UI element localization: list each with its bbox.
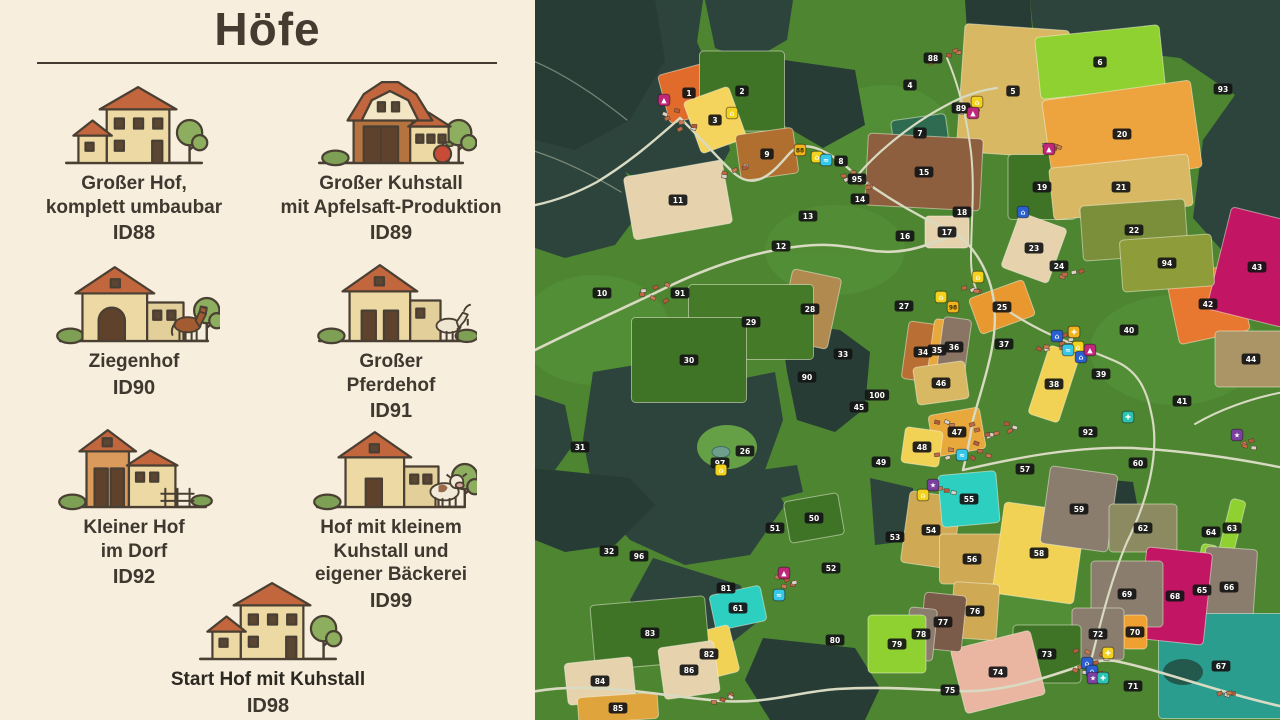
field-label-75: 75	[941, 685, 960, 696]
svg-text:34: 34	[918, 348, 928, 357]
svg-text:41: 41	[1177, 397, 1187, 406]
svg-text:76: 76	[970, 607, 980, 616]
svg-text:55: 55	[964, 495, 974, 504]
farm-poi-icon[interactable]: ⌂	[726, 107, 738, 119]
svg-text:✚: ✚	[1105, 650, 1111, 658]
svg-text:✚: ✚	[1125, 414, 1131, 422]
field-label-94: 94	[1158, 258, 1177, 269]
svg-text:35: 35	[932, 346, 942, 355]
svg-text:20: 20	[1117, 130, 1127, 139]
svg-text:40: 40	[1124, 326, 1134, 335]
svg-text:80: 80	[830, 636, 840, 645]
field-label-91: 91	[671, 288, 690, 299]
svg-text:✚: ✚	[1071, 329, 1077, 337]
field-label-54: 54	[922, 525, 941, 536]
field-label-55: 55	[960, 494, 979, 505]
svg-text:89: 89	[956, 104, 966, 113]
svg-text:94: 94	[1162, 259, 1172, 268]
svg-text:44: 44	[1246, 355, 1256, 364]
svg-text:7: 7	[917, 129, 922, 138]
field-label-72: 72	[1089, 629, 1108, 640]
svg-text:81: 81	[721, 584, 731, 593]
svg-text:96: 96	[634, 552, 644, 561]
svg-text:⌂: ⌂	[974, 99, 979, 107]
field-label-8: 8	[834, 156, 847, 167]
field-label-44: 44	[1242, 354, 1261, 365]
svg-text:71: 71	[1128, 682, 1138, 691]
statue-icon[interactable]: ▲	[658, 94, 670, 106]
field-label-19: 19	[1033, 182, 1052, 193]
field-label-63: 63	[1223, 523, 1242, 534]
field-label-36: 36	[945, 342, 964, 353]
field-label-9: 9	[760, 149, 773, 160]
field-label-32: 32	[600, 546, 619, 557]
svg-text:47: 47	[952, 428, 962, 437]
field-label-35: 35	[928, 345, 947, 356]
barn-horse-icon	[48, 252, 220, 348]
field-label-82: 82	[700, 649, 719, 660]
field-label-43: 43	[1248, 262, 1267, 273]
field-label-86: 86	[680, 665, 699, 676]
svg-text:22: 22	[1129, 226, 1139, 235]
farmhouse-icon	[182, 570, 354, 666]
svg-text:⌂: ⌂	[920, 492, 925, 500]
svg-text:61: 61	[733, 604, 743, 613]
field-label-56: 56	[963, 554, 982, 565]
shop-poi-icon[interactable]: ⌂	[1051, 330, 1063, 342]
svg-text:24: 24	[1054, 262, 1064, 271]
svg-text:⌂: ⌂	[814, 154, 819, 162]
svg-text:▲: ▲	[1087, 347, 1093, 355]
field-label-6: 6	[1093, 57, 1106, 68]
statue-icon[interactable]: ▲	[967, 107, 979, 119]
field-label-3: 3	[708, 115, 721, 126]
field-label-1: 1	[682, 88, 695, 99]
svg-text:16: 16	[900, 232, 910, 241]
field-label-96: 96	[630, 551, 649, 562]
farm-entry-id90: ZiegenhofID90	[14, 252, 254, 400]
svg-text:▲: ▲	[1046, 146, 1052, 154]
field-label-13: 13	[799, 211, 818, 222]
field-label-16: 16	[896, 231, 915, 242]
svg-text:45: 45	[854, 403, 864, 412]
field-label-74: 74	[989, 667, 1008, 678]
svg-text:⌂: ⌂	[1078, 354, 1083, 362]
svg-text:⌂: ⌂	[975, 274, 980, 282]
field-label-30: 30	[680, 355, 699, 366]
production-poi-icon[interactable]: ✚	[1122, 411, 1134, 423]
field-label-70: 70	[1126, 627, 1145, 638]
app-root: Höfe Großer Hof,komplett umbaubarID88 Gr…	[0, 0, 1280, 720]
hoefe-legend-panel: Höfe Großer Hof,komplett umbaubarID88 Gr…	[0, 0, 535, 720]
field-label-37: 37	[995, 339, 1014, 350]
svg-text:★: ★	[930, 482, 936, 490]
svg-text:27: 27	[899, 302, 909, 311]
field-label-67: 67	[1212, 661, 1231, 672]
field-label-21: 21	[1112, 182, 1131, 193]
svg-text:29: 29	[746, 318, 756, 327]
farm-entry-id89: Großer Kuhstallmit Apfelsaft-ProduktionI…	[258, 74, 524, 245]
svg-text:31: 31	[575, 443, 585, 452]
water-poi-icon[interactable]: ≈	[773, 589, 785, 601]
svg-text:62: 62	[1138, 524, 1148, 533]
farm-id: ID88	[113, 222, 155, 245]
farm-entry-id91: GroßerPferdehofID91	[258, 252, 524, 423]
svg-text:42: 42	[1203, 300, 1213, 309]
field-label-7: 7	[913, 128, 926, 139]
svg-text:79: 79	[892, 640, 902, 649]
field-label-65: 65	[1193, 585, 1212, 596]
svg-text:98: 98	[949, 304, 957, 311]
field-label-60: 60	[1129, 458, 1148, 469]
svg-text:3: 3	[712, 116, 717, 125]
page-title: Höfe	[0, 2, 535, 56]
field-label-49: 49	[872, 457, 891, 468]
svg-text:13: 13	[803, 212, 813, 221]
svg-text:75: 75	[945, 686, 955, 695]
field-label-14: 14	[851, 194, 870, 205]
field-label-68: 68	[1166, 591, 1185, 602]
svg-text:⌂: ⌂	[938, 294, 943, 302]
field-label-17: 17	[938, 227, 957, 238]
field-label-25: 25	[993, 302, 1012, 313]
map-area[interactable]: 1234567891011121314151617181920212223242…	[535, 0, 1280, 720]
svg-text:88: 88	[928, 54, 938, 63]
svg-text:15: 15	[919, 168, 929, 177]
special-poi-icon[interactable]: ★	[1231, 429, 1243, 441]
svg-text:✚: ✚	[1100, 675, 1106, 683]
field-label-81: 81	[717, 583, 736, 594]
svg-text:⌂: ⌂	[1075, 344, 1080, 352]
svg-text:66: 66	[1224, 583, 1234, 592]
svg-text:8: 8	[838, 157, 843, 166]
farmhouse-icon	[48, 74, 220, 170]
svg-text:38: 38	[1049, 380, 1059, 389]
field-label-29: 29	[742, 317, 761, 328]
svg-text:91: 91	[675, 289, 685, 298]
field-label-85: 85	[609, 703, 628, 714]
svg-text:⌂: ⌂	[1020, 209, 1025, 217]
field-label-69: 69	[1118, 589, 1137, 600]
map-canvas[interactable]: 1234567891011121314151617181920212223242…	[535, 0, 1280, 720]
svg-text:33: 33	[838, 350, 848, 359]
field-label-47: 47	[948, 427, 967, 438]
svg-text:46: 46	[936, 379, 946, 388]
field-label-2: 2	[735, 86, 748, 97]
farm-name: Großer Hof,komplett umbaubar	[46, 172, 222, 219]
svg-text:70: 70	[1130, 628, 1140, 637]
field-label-64: 64	[1202, 527, 1221, 538]
field-label-57: 57	[1016, 464, 1035, 475]
farm-poi-icon[interactable]: ⌂	[935, 291, 947, 303]
svg-text:★: ★	[1090, 675, 1096, 683]
field-label-83: 83	[641, 628, 660, 639]
water-poi-icon[interactable]: ≈	[1062, 344, 1074, 356]
svg-text:21: 21	[1116, 183, 1126, 192]
svg-text:⌂: ⌂	[718, 467, 723, 475]
field-label-31: 31	[571, 442, 590, 453]
farm-id: ID89	[370, 222, 412, 245]
farm-name: Start Hof mit Kuhstall	[171, 668, 365, 692]
svg-text:▲: ▲	[661, 97, 667, 105]
svg-text:72: 72	[1093, 630, 1103, 639]
field-label-71: 71	[1124, 681, 1143, 692]
field-label-80: 80	[826, 635, 845, 646]
field-label-4: 4	[903, 80, 916, 91]
field-label-42: 42	[1199, 299, 1218, 310]
field-label-92: 92	[1079, 427, 1098, 438]
svg-text:36: 36	[949, 343, 959, 352]
svg-text:74: 74	[993, 668, 1003, 677]
field-label-26: 26	[736, 446, 755, 457]
field-label-84: 84	[591, 676, 610, 687]
svg-text:78: 78	[916, 630, 926, 639]
svg-text:37: 37	[999, 340, 1009, 349]
svg-text:11: 11	[673, 196, 683, 205]
production-poi-icon[interactable]: ✚	[1068, 326, 1080, 338]
svg-text:49: 49	[876, 458, 886, 467]
field-label-53: 53	[886, 532, 905, 543]
svg-text:32: 32	[604, 547, 614, 556]
production-poi-icon[interactable]: ✚	[1097, 672, 1109, 684]
field-label-50: 50	[805, 513, 824, 524]
svg-text:2: 2	[739, 87, 744, 96]
field-label-77: 77	[934, 617, 953, 628]
statue-icon[interactable]: ▲	[1043, 143, 1055, 155]
svg-text:43: 43	[1252, 263, 1262, 272]
svg-text:86: 86	[684, 666, 694, 675]
svg-text:⌂: ⌂	[1054, 333, 1059, 341]
water-poi-icon[interactable]: ≈	[820, 154, 832, 166]
svg-text:60: 60	[1133, 459, 1143, 468]
farm-id: ID98	[247, 695, 289, 718]
svg-text:⌂: ⌂	[729, 110, 734, 118]
field-98-marker[interactable]: 98	[947, 301, 959, 313]
field-label-46: 46	[932, 378, 951, 389]
field-label-73: 73	[1038, 649, 1057, 660]
svg-text:84: 84	[595, 677, 605, 686]
svg-text:52: 52	[826, 564, 836, 573]
field-label-61: 61	[729, 603, 748, 614]
field-label-24: 24	[1050, 261, 1069, 272]
barn-goat-icon	[305, 252, 477, 348]
field-label-59: 59	[1070, 504, 1089, 515]
farm-name: Ziegenhof	[89, 350, 180, 374]
svg-text:100: 100	[869, 391, 885, 400]
field-label-66: 66	[1220, 582, 1239, 593]
field-label-33: 33	[834, 349, 853, 360]
field-label-52: 52	[822, 563, 841, 574]
svg-text:39: 39	[1096, 370, 1106, 379]
barn-fence-icon	[48, 418, 220, 514]
field-88-marker[interactable]: 88	[794, 144, 806, 156]
farm-poi-icon[interactable]: ⌂	[917, 489, 929, 501]
svg-text:10: 10	[597, 289, 607, 298]
svg-text:6: 6	[1097, 58, 1102, 67]
farm-entry-id98: Start Hof mit KuhstallID98	[125, 570, 411, 718]
field-label-41: 41	[1173, 396, 1192, 407]
svg-text:51: 51	[770, 524, 780, 533]
field-label-48: 48	[913, 442, 932, 453]
svg-text:12: 12	[776, 242, 786, 251]
svg-text:▲: ▲	[970, 110, 976, 118]
svg-text:69: 69	[1122, 590, 1132, 599]
field-label-45: 45	[850, 402, 869, 413]
field-label-100: 100	[865, 390, 889, 401]
field-label-12: 12	[772, 241, 791, 252]
field-label-95: 95	[848, 174, 867, 185]
svg-text:64: 64	[1206, 528, 1216, 537]
svg-text:95: 95	[852, 175, 862, 184]
farm-name: Kleiner Hofim Dorf	[83, 516, 184, 563]
field-label-22: 22	[1125, 225, 1144, 236]
svg-text:83: 83	[645, 629, 655, 638]
field-label-58: 58	[1030, 548, 1049, 559]
svg-text:≈: ≈	[776, 592, 782, 600]
svg-text:23: 23	[1029, 244, 1039, 253]
farm-poi-icon[interactable]: ⌂	[971, 96, 983, 108]
svg-text:77: 77	[938, 618, 948, 627]
field-label-20: 20	[1113, 129, 1132, 140]
field-label-10: 10	[593, 288, 612, 299]
field-label-39: 39	[1092, 369, 1111, 380]
svg-text:≈: ≈	[823, 157, 829, 165]
field-label-23: 23	[1025, 243, 1044, 254]
field-label-93: 93	[1214, 84, 1233, 95]
field-label-11: 11	[669, 195, 688, 206]
svg-text:65: 65	[1197, 586, 1207, 595]
svg-text:93: 93	[1218, 85, 1228, 94]
field-label-15: 15	[915, 167, 934, 178]
title-underline	[37, 62, 497, 64]
field-label-78: 78	[912, 629, 931, 640]
special-poi-icon[interactable]: ★	[927, 479, 939, 491]
svg-text:26: 26	[740, 447, 750, 456]
svg-text:14: 14	[855, 195, 865, 204]
svg-text:5: 5	[1010, 87, 1015, 96]
svg-text:30: 30	[684, 356, 694, 365]
svg-text:28: 28	[805, 305, 815, 314]
svg-text:67: 67	[1216, 662, 1226, 671]
svg-text:63: 63	[1227, 524, 1237, 533]
field-label-62: 62	[1134, 523, 1153, 534]
shop-poi-icon[interactable]: ⌂	[1017, 206, 1029, 218]
field-label-40: 40	[1120, 325, 1139, 336]
farm-id: ID90	[113, 377, 155, 400]
field-label-38: 38	[1045, 379, 1064, 390]
farm-poi-icon[interactable]: ⌂	[715, 464, 727, 476]
statue-icon[interactable]: ▲	[778, 567, 790, 579]
farm-poi-icon[interactable]: ⌂	[972, 271, 984, 283]
field-label-88: 88	[924, 53, 943, 64]
statue-icon[interactable]: ▲	[1084, 344, 1096, 356]
field-label-18: 18	[953, 207, 972, 218]
farm-entry-id88: Großer Hof,komplett umbaubarID88	[14, 74, 254, 245]
svg-text:9: 9	[764, 150, 769, 159]
svg-text:1: 1	[686, 89, 691, 98]
svg-text:68: 68	[1170, 592, 1180, 601]
svg-text:58: 58	[1034, 549, 1044, 558]
svg-text:53: 53	[890, 533, 900, 542]
water-poi-icon[interactable]: ≈	[956, 449, 968, 461]
farm-name: GroßerPferdehof	[347, 350, 436, 397]
production-poi-icon[interactable]: ✚	[1102, 647, 1114, 659]
svg-text:85: 85	[613, 704, 623, 713]
svg-text:≈: ≈	[959, 452, 965, 460]
svg-text:50: 50	[809, 514, 819, 523]
field-label-5: 5	[1006, 86, 1019, 97]
svg-text:88: 88	[796, 147, 804, 154]
svg-text:17: 17	[942, 228, 952, 237]
svg-text:≈: ≈	[1065, 347, 1071, 355]
field-label-76: 76	[966, 606, 985, 617]
svg-text:48: 48	[917, 443, 927, 452]
svg-text:82: 82	[704, 650, 714, 659]
farm-name: Großer Kuhstallmit Apfelsaft-Produktion	[281, 172, 502, 219]
barn-apple-icon	[305, 74, 477, 170]
svg-text:90: 90	[802, 373, 812, 382]
svg-text:4: 4	[907, 81, 912, 90]
farm-entry-id92: Kleiner Hofim DorfID92	[14, 418, 254, 589]
svg-text:73: 73	[1042, 650, 1052, 659]
field-label-79: 79	[888, 639, 907, 650]
svg-text:★: ★	[1234, 432, 1240, 440]
field-label-27: 27	[895, 301, 914, 312]
svg-text:18: 18	[957, 208, 967, 217]
svg-text:25: 25	[997, 303, 1007, 312]
svg-text:92: 92	[1083, 428, 1093, 437]
svg-text:▲: ▲	[781, 570, 787, 578]
svg-text:19: 19	[1037, 183, 1047, 192]
field-label-28: 28	[801, 304, 820, 315]
svg-text:56: 56	[967, 555, 977, 564]
field-label-51: 51	[766, 523, 785, 534]
svg-text:57: 57	[1020, 465, 1030, 474]
svg-text:54: 54	[926, 526, 936, 535]
field-label-90: 90	[798, 372, 817, 383]
svg-text:59: 59	[1074, 505, 1084, 514]
barn-cow-icon	[305, 418, 477, 514]
